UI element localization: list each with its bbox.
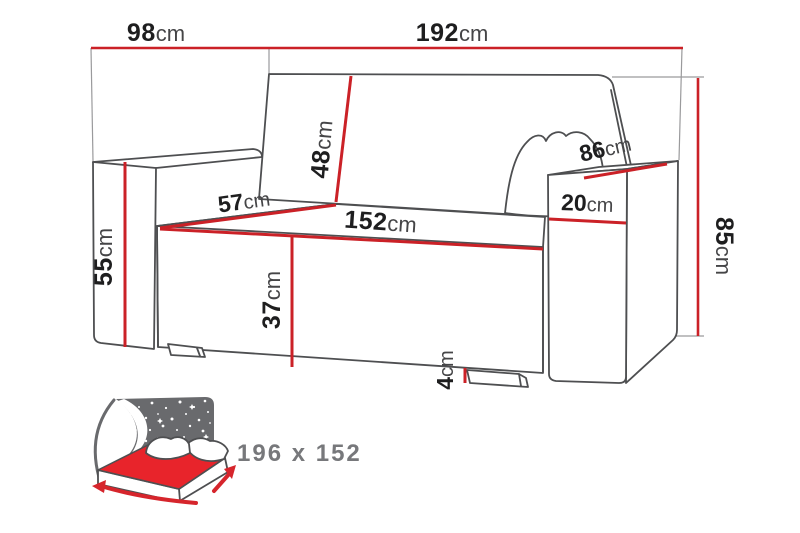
label-width-overall: 192cm bbox=[416, 19, 489, 47]
label-armrest-height: 55cm bbox=[90, 228, 118, 286]
sofa-bed-icon: 196 x 152 bbox=[92, 397, 362, 503]
sofa-dimension-drawing: 98cm 192cm 85cm 55cm 48cm 57cm 152cm 37c… bbox=[0, 0, 800, 533]
dimension-diagram: 98cm 192cm 85cm 55cm 48cm 57cm 152cm 37c… bbox=[0, 0, 800, 533]
label-seat-height: 37cm bbox=[258, 271, 286, 329]
label-leg-height: 4cm bbox=[432, 350, 458, 389]
label-depth-overall: 98cm bbox=[127, 19, 185, 47]
label-height-overall: 85cm bbox=[710, 217, 738, 275]
bed-size-label: 196 x 152 bbox=[237, 440, 362, 467]
